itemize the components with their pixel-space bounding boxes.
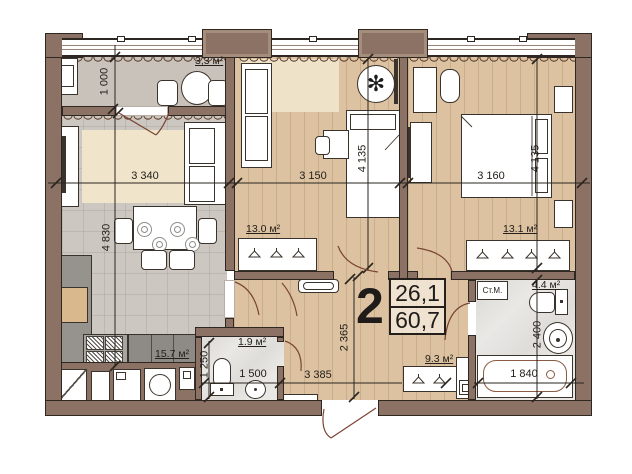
kitchen-area-label: 15.7 м² (155, 348, 189, 360)
dim-living-height: 4 830 (101, 210, 114, 266)
dim-living-width: 3 340 (119, 170, 171, 182)
dim-room1-width: 3 150 (287, 170, 339, 182)
bedroom-area-label: 13.1 м² (503, 223, 537, 235)
wc-area-label: 1.9 м² (238, 336, 266, 348)
total-area-value: 60,7 (391, 306, 444, 333)
area-badge-box: 26,1 60,7 (389, 278, 446, 335)
bathroom-door-arc (445, 303, 470, 340)
dim-bath-length: 1 840 (498, 368, 550, 380)
dim-bathroom-height: 2 400 (532, 307, 545, 363)
bathroom-area-label: 4.4 м² (532, 279, 560, 291)
dim-loggia-height: 1 000 (99, 54, 112, 110)
dim-wc-height: 1 250 (199, 337, 212, 393)
dimension-lines (48, 45, 590, 399)
hall-area-label: 9.3 м² (425, 353, 453, 365)
room-count-badge: 2 (356, 281, 384, 331)
entrance-door-arc (323, 408, 376, 438)
dim-room1-height: 4 135 (357, 131, 370, 187)
bedroom-door-arc (417, 248, 452, 271)
dimension-overlay (0, 0, 632, 474)
living-door-arc (235, 282, 297, 316)
loggia-area-label: 3,3 м² (195, 55, 223, 67)
dim-bedroom-width: 3 160 (465, 170, 517, 182)
floor-plan: ✻ Ст.М. (0, 0, 632, 474)
dim-hall-width: 3 385 (292, 369, 344, 381)
room1-door-arc (338, 246, 378, 272)
wc-door-arc (285, 341, 301, 371)
dim-wc-width: 1 500 (227, 368, 279, 380)
balcony-door-arc (119, 113, 169, 135)
room1-area-label: 13.0 м² (246, 223, 280, 235)
living-area-value: 26,1 (391, 280, 444, 306)
dim-hall-height: 2 365 (339, 310, 352, 366)
dim-bedroom-height: 4 135 (530, 131, 543, 187)
door-swing-arcs (119, 113, 470, 438)
bed-fold-line (385, 135, 399, 150)
bed-fold-line (461, 116, 472, 127)
